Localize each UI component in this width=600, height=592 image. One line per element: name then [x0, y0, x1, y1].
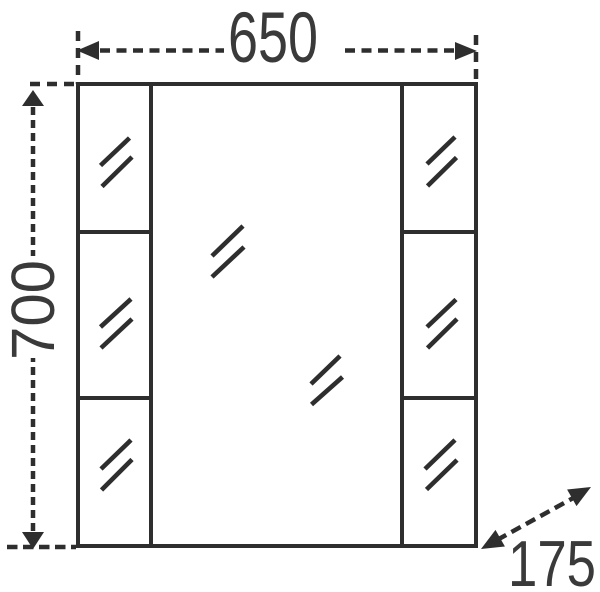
svg-text:650: 650 — [228, 0, 318, 78]
svg-text:700: 700 — [0, 260, 67, 360]
svg-text:175: 175 — [508, 527, 596, 592]
